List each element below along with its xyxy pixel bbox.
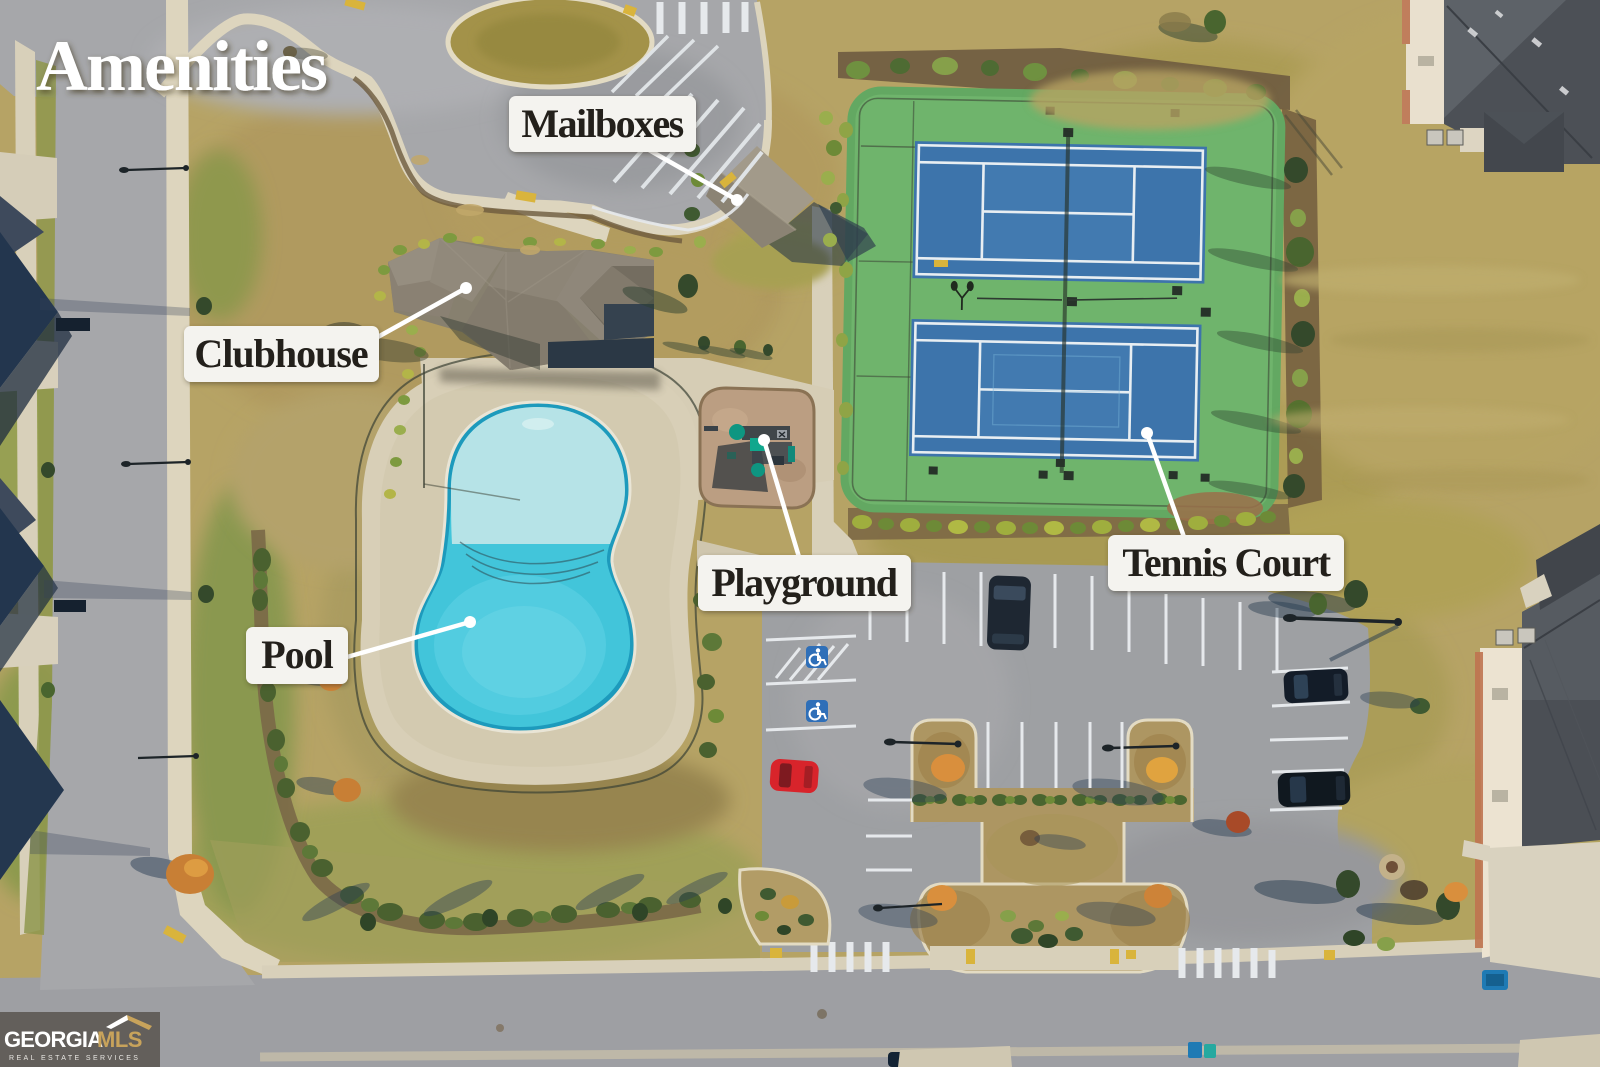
svg-text:REAL ESTATE SERVICES: REAL ESTATE SERVICES — [9, 1055, 140, 1062]
svg-text:Mailboxes: Mailboxes — [521, 101, 683, 146]
svg-text:Clubhouse: Clubhouse — [194, 331, 368, 376]
svg-text:Tennis Court: Tennis Court — [1122, 540, 1331, 585]
svg-text:GEORGIA: GEORGIA — [4, 1027, 103, 1052]
svg-text:MLS: MLS — [97, 1027, 142, 1052]
svg-text:Amenities: Amenities — [36, 26, 327, 106]
svg-text:Playground: Playground — [711, 560, 897, 605]
svg-text:Pool: Pool — [261, 632, 333, 677]
